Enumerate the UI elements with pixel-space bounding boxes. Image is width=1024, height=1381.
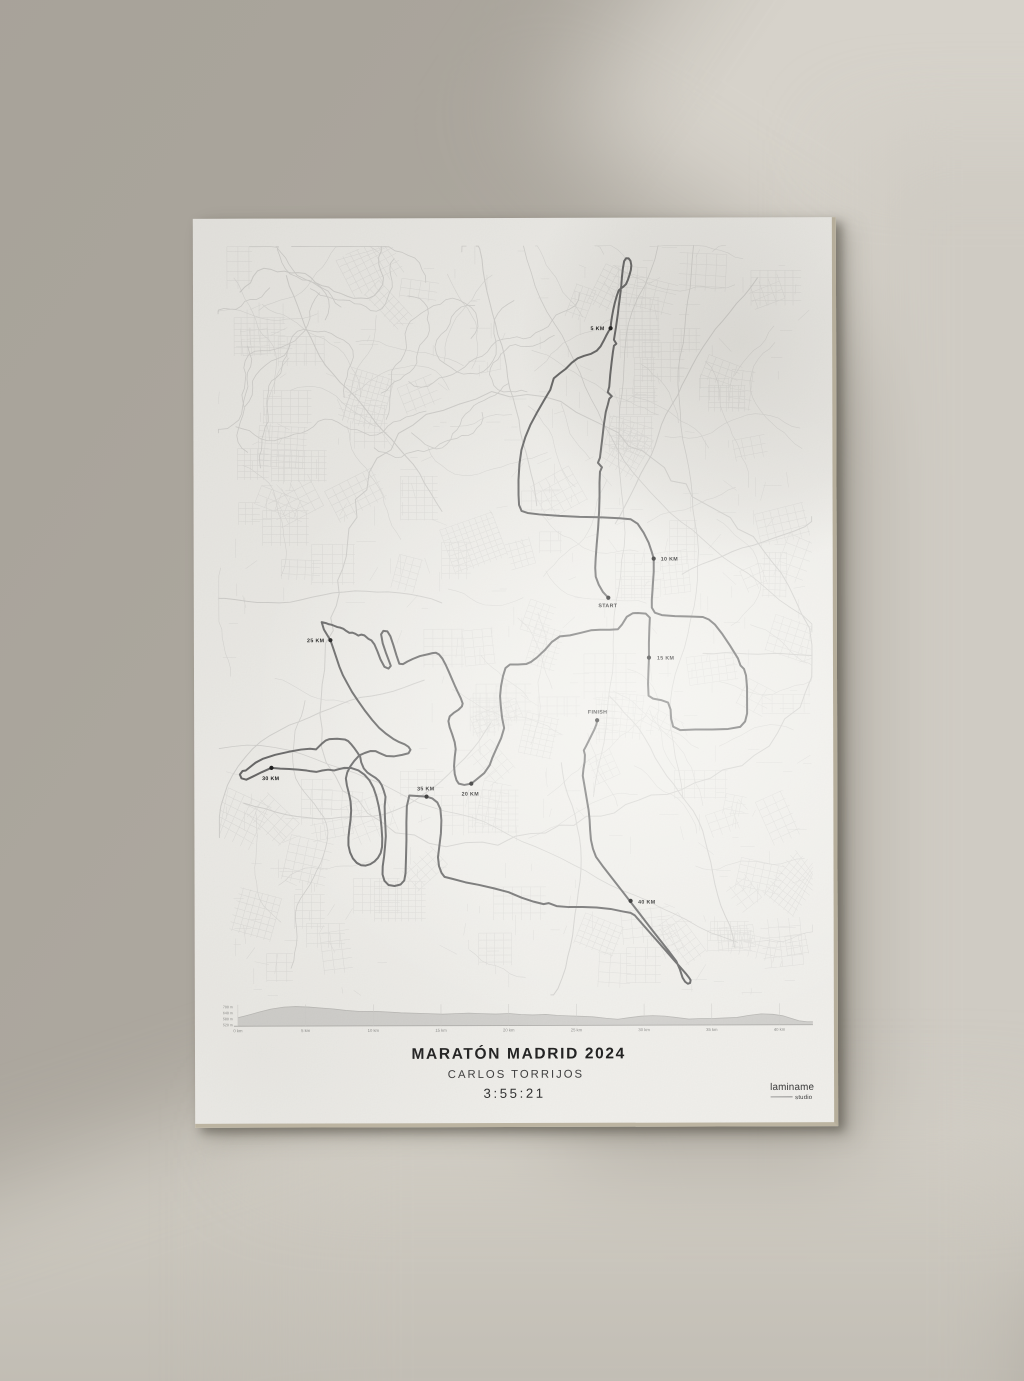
svg-text:5 km: 5 km: [301, 1028, 311, 1033]
svg-text:CARLOS TORRIJOS: CARLOS TORRIJOS: [448, 1069, 584, 1081]
svg-text:30 km: 30 km: [638, 1027, 650, 1032]
svg-text:40 km: 40 km: [774, 1027, 786, 1032]
svg-text:3:55:21: 3:55:21: [483, 1086, 545, 1101]
svg-text:10 KM: 10 KM: [661, 557, 679, 563]
svg-text:30 KM: 30 KM: [262, 776, 280, 782]
svg-text:700 m: 700 m: [223, 1005, 233, 1009]
svg-text:20 KM: 20 KM: [462, 792, 480, 798]
svg-text:FINISH: FINISH: [588, 710, 607, 716]
svg-text:0 km: 0 km: [233, 1028, 243, 1033]
svg-text:520 m: 520 m: [223, 1023, 233, 1027]
svg-text:laminame: laminame: [770, 1082, 814, 1093]
svg-text:640 m: 640 m: [223, 1011, 233, 1015]
svg-text:25 KM: 25 KM: [307, 638, 325, 644]
svg-text:5 KM: 5 KM: [591, 326, 605, 332]
svg-text:35 KM: 35 KM: [417, 786, 435, 792]
svg-text:START: START: [598, 603, 617, 609]
svg-text:15 km: 15 km: [435, 1028, 447, 1033]
svg-text:40 KM: 40 KM: [638, 900, 656, 906]
svg-text:15 KM: 15 KM: [657, 656, 675, 662]
svg-text:20 km: 20 km: [503, 1028, 515, 1033]
svg-text:10 km: 10 km: [368, 1028, 380, 1033]
svg-text:studio: studio: [795, 1095, 813, 1101]
svg-text:580 m: 580 m: [223, 1017, 233, 1021]
svg-text:25 km: 25 km: [571, 1027, 583, 1032]
svg-text:35 km: 35 km: [706, 1027, 718, 1032]
svg-text:MARATÓN MADRID 2024: MARATÓN MADRID 2024: [411, 1044, 626, 1063]
